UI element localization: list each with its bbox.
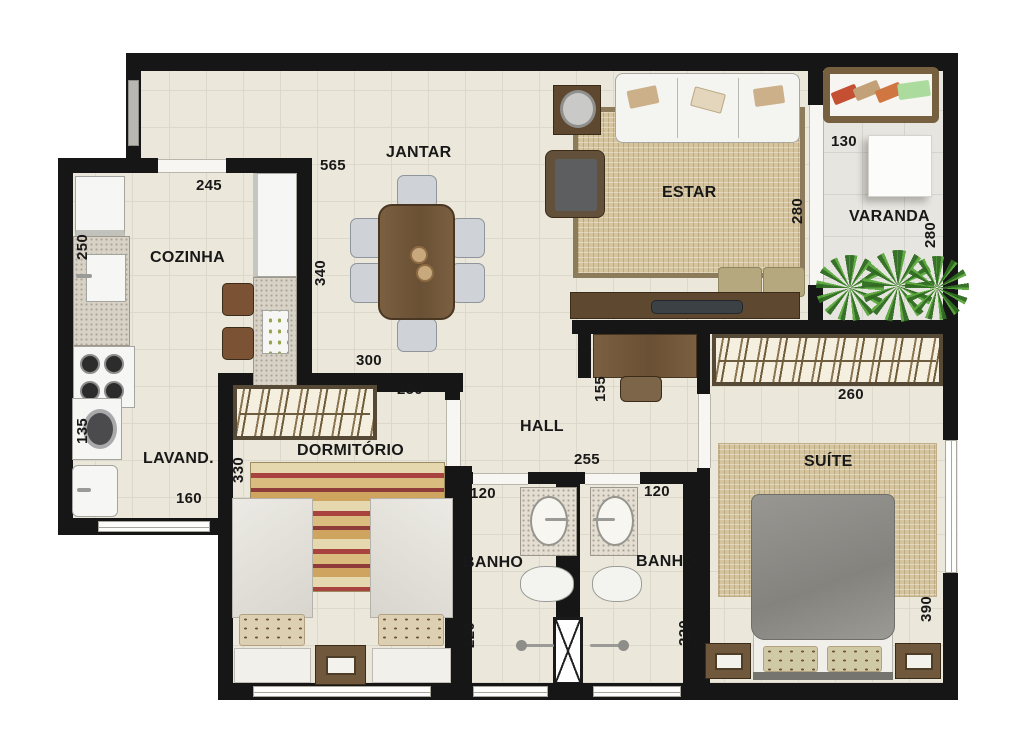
armchair-seat (555, 159, 597, 211)
cozinha-label: COZINHA (150, 249, 225, 267)
bed-pillow (239, 614, 305, 646)
suite-wardrobe (712, 334, 943, 386)
suite-window (945, 440, 957, 573)
suite-dim-depth: 390 (918, 596, 935, 622)
bed-pillow (763, 646, 818, 672)
wall-kitchen-dining (297, 158, 312, 380)
hall-dim-width: 255 (574, 451, 600, 468)
wall-dormitorio-left (218, 373, 233, 700)
sofa-pillow (690, 86, 726, 114)
stove-burner (80, 354, 100, 374)
dormitorio-wardrobe (233, 385, 377, 440)
tv (651, 300, 743, 314)
dining-table (378, 204, 455, 320)
tv-sideboard (570, 292, 800, 319)
bench-pillow-green (897, 80, 931, 100)
dormitorio-dim-width: 250 (397, 381, 423, 398)
banho1-toilet (520, 566, 574, 602)
banho1-dim-width: 120 (470, 485, 496, 502)
wall-exterior-right-upper (943, 53, 958, 440)
banho2-label: BANHO (636, 553, 696, 571)
ventilation-shaft (553, 617, 583, 685)
dormitorio-dim-depth: 330 (230, 457, 247, 483)
sofa-pillow (626, 85, 659, 109)
suite-nightstand (895, 643, 941, 679)
wall-banho-top-mid (528, 472, 585, 484)
desk-chair (620, 376, 662, 402)
sofa (615, 73, 800, 143)
bar-stool (222, 283, 254, 316)
cozinha-dim-width: 245 (196, 177, 222, 194)
kitchen-faucet (76, 274, 92, 278)
entry-door (128, 80, 139, 146)
fridge (75, 176, 125, 236)
armchair (545, 150, 605, 218)
stove-burner (104, 354, 124, 374)
jantar-dim-bottom: 300 (356, 352, 382, 369)
bed-pillow (378, 614, 444, 646)
banho1-faucet (545, 518, 567, 521)
banho2-window (593, 686, 681, 697)
wall-kitchen-top-left (58, 158, 158, 173)
bed-duvet (232, 498, 313, 618)
kitchen-tall-cabinet (253, 173, 297, 277)
side-table (553, 85, 601, 135)
dormitorio-label: DORMITÓRIO (297, 442, 404, 460)
table-centerpiece (410, 246, 428, 264)
laundry-tub (72, 465, 118, 517)
jantar-label: JANTAR (386, 144, 452, 162)
round-tray (560, 90, 596, 128)
dormitorio-nightstand (315, 645, 366, 685)
banho1-label: BANHO (463, 554, 523, 572)
shower-head (618, 640, 629, 651)
dormitorio-window (253, 686, 431, 697)
varanda-bench (823, 67, 939, 123)
nightstand-top (905, 653, 933, 670)
hall-label: HALL (520, 418, 564, 436)
exterior-notch-top-left (50, 45, 128, 160)
plant (905, 256, 969, 320)
varanda-dim-depth: 280 (922, 222, 939, 248)
shower-head (516, 640, 527, 651)
banho2-faucet (593, 518, 615, 521)
laundry-faucet (77, 488, 91, 492)
dining-chair (451, 218, 485, 258)
banho1-dim-depth: 220 (461, 622, 478, 648)
banho2-sink (596, 496, 634, 546)
banho2-shower-bar (590, 644, 624, 647)
sofa-seam (677, 78, 678, 138)
banho1-window (473, 686, 548, 697)
varanda-cube-table (868, 135, 932, 197)
cozinha-dim-depth: 250 (74, 234, 91, 260)
estar-label: ESTAR (662, 184, 717, 202)
banho2-vanity (590, 487, 638, 556)
lavand-label: LAVAND. (143, 450, 214, 468)
banho1-vanity (520, 487, 577, 556)
single-bed (232, 498, 313, 683)
varanda-sliding-door (809, 105, 824, 285)
estar-dim-depth: 280 (789, 198, 806, 224)
wall-exterior-right-lower (943, 573, 958, 700)
wall-desk-nook-left (578, 334, 591, 378)
banho1-shower-bar (520, 644, 554, 647)
jantar-dim-depth: 340 (312, 260, 329, 286)
single-bed (370, 498, 453, 683)
banho2-dim-depth: 220 (676, 620, 693, 646)
lavand-dim-depth: 135 (74, 418, 91, 444)
wall-suite-bottom (697, 683, 958, 700)
bed-pillow (827, 646, 882, 672)
banho2-dim-width: 120 (644, 483, 670, 500)
dining-chair (451, 263, 485, 303)
varanda-dim-width: 130 (831, 133, 857, 150)
exterior-notch-bottom-left (50, 535, 218, 705)
nightstand-top (715, 653, 743, 670)
lavand-dim-width: 160 (176, 490, 202, 507)
dining-chair (397, 318, 437, 352)
bed-footboard (753, 672, 893, 680)
kitchen-door-opening (158, 159, 226, 173)
countertop-appliance (262, 310, 289, 354)
laundry-window (98, 521, 210, 532)
wall-banho1-top-a (458, 472, 473, 484)
sofa-pillow (753, 85, 785, 107)
bed-sheet (372, 648, 451, 683)
wall-varanda-left-upper (808, 53, 823, 105)
nightstand-top (326, 656, 356, 675)
varanda-label: VARANDA (849, 208, 930, 226)
banho2-toilet (592, 566, 642, 602)
banho2-door-opening (585, 473, 640, 485)
banho1-sink (530, 496, 568, 546)
bed-sheet (234, 648, 311, 683)
suite-label: SUÍTE (804, 453, 853, 471)
bed-duvet (751, 494, 895, 640)
kitchen-sink (86, 254, 126, 302)
desk (593, 334, 697, 378)
bar-stool (222, 327, 254, 360)
wall-living-suite (572, 320, 958, 334)
sofa-seam (738, 78, 739, 138)
hall-dim-desk: 155 (592, 376, 609, 402)
bed-duvet (370, 498, 453, 618)
wall-suite-left-upper (697, 334, 710, 394)
dormitorio-door-opening (446, 400, 461, 466)
table-centerpiece (416, 264, 434, 282)
wall-dormitorio-right-upper (445, 373, 460, 400)
suite-dim-width: 260 (838, 386, 864, 403)
double-bed (751, 494, 895, 680)
jantar-dim-width: 565 (320, 157, 346, 174)
floor-plan: COZINHA 245 250 JANTAR 565 340 300 ESTAR… (0, 0, 1024, 739)
suite-nightstand (705, 643, 751, 679)
wall-exterior-left (58, 158, 73, 535)
suite-door-opening (698, 394, 711, 468)
banho1-door-opening (473, 473, 528, 485)
